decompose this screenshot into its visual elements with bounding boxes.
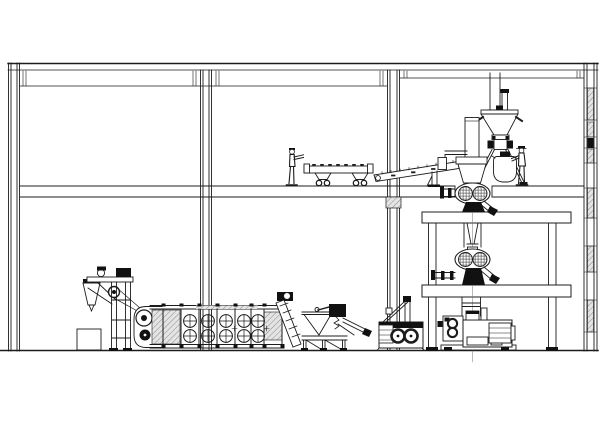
drive-motor [116, 268, 131, 277]
rotary-valve [494, 140, 507, 150]
frame-top-beam [87, 277, 133, 282]
top-fitting-cap [466, 311, 479, 314]
leg-foot [109, 348, 118, 351]
flange-bolt [506, 136, 509, 139]
mid-pulley-hub [112, 290, 116, 294]
pipe-flange [431, 270, 435, 280]
feed-roller [448, 319, 457, 328]
valve-side-box [507, 141, 513, 149]
sifter-foot [340, 348, 347, 351]
drum-pedestal [462, 268, 485, 285]
vessel-neck [500, 152, 510, 157]
drum-pedestal [462, 202, 485, 212]
platform-slab-2 [422, 285, 571, 297]
spout-bracket [386, 308, 392, 314]
floor-beam-at-column-b [386, 197, 401, 208]
platform-column-foot [426, 347, 438, 351]
end-cap-right [368, 164, 374, 173]
hopper-top-fitting [496, 106, 503, 111]
wall-block [588, 246, 594, 272]
mill-foot [501, 347, 509, 351]
trolley-wheel [324, 180, 329, 185]
drum-roll [473, 187, 487, 201]
drum-roll [459, 187, 473, 201]
platform-slab-1 [422, 212, 571, 223]
wall-block [588, 300, 594, 332]
worker-head [290, 149, 295, 154]
valve-side-box [488, 141, 494, 149]
wall-block [588, 188, 594, 218]
side-pipe-cap [501, 89, 510, 93]
worker-torso [519, 153, 526, 166]
roller-hub [410, 335, 413, 338]
leg-foot [123, 348, 132, 351]
inlet-drum-hub [141, 315, 147, 321]
platform-column-foot [546, 347, 558, 351]
funnel-shoulder [456, 157, 487, 164]
pipe-flange [441, 271, 445, 280]
pipe-flange [450, 271, 454, 280]
trolley-wheel [361, 180, 366, 185]
feeder-side-box [438, 321, 443, 327]
plant-elevation-svg [0, 0, 600, 421]
end-cap-left [304, 164, 310, 173]
motor-end-cap [511, 326, 515, 340]
flange-bolt [493, 136, 496, 139]
pipe-flange [448, 188, 452, 198]
drum-roll [473, 253, 487, 267]
hopper-flange [481, 110, 518, 114]
bracket-plate [438, 158, 447, 170]
mill-foot [444, 347, 452, 351]
feed-roller [448, 328, 457, 337]
trolley-wheel [353, 180, 358, 185]
standpipe [465, 118, 479, 158]
wall-block-dark [588, 138, 594, 148]
vibrator-motor [329, 304, 346, 317]
wall-block [588, 88, 594, 120]
sifter-foot [301, 348, 308, 351]
pulley-cap [97, 267, 106, 271]
wall-block [588, 149, 594, 163]
conveyor-beam [304, 166, 373, 173]
sifter-foot [320, 348, 327, 351]
wall-block [588, 122, 594, 137]
motor-pulley [284, 293, 291, 300]
leg-foot [428, 185, 440, 188]
trolley-wheel [316, 180, 321, 185]
worker-torso [290, 155, 296, 167]
inlet-hatch-panel [152, 310, 180, 344]
top-hatch-strip [196, 306, 258, 310]
lower-pulley-dot [144, 334, 147, 337]
drawing-frame [0, 0, 600, 421]
pipe-flange [440, 187, 444, 199]
roller-hub [397, 335, 400, 338]
drum-roll [459, 253, 473, 267]
top-pipe [481, 308, 487, 320]
worker-head [519, 148, 524, 153]
